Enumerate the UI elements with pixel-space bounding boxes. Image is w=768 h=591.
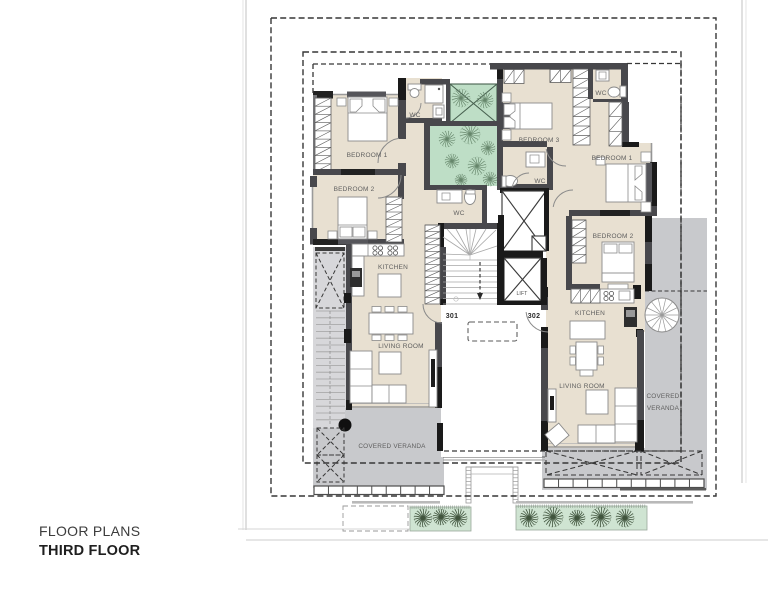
svg-text:BEDROOM 1: BEDROOM 1	[592, 155, 633, 162]
svg-text:BEDROOM 3: BEDROOM 3	[519, 137, 560, 144]
svg-text:WC: WC	[534, 178, 545, 185]
svg-text:WC: WC	[595, 90, 606, 97]
svg-text:LIVING ROOM: LIVING ROOM	[378, 343, 424, 350]
svg-text:LIFT: LIFT	[516, 291, 527, 297]
svg-text:BEDROOM 2: BEDROOM 2	[593, 233, 634, 240]
svg-text:KITCHEN: KITCHEN	[575, 310, 605, 317]
svg-text:COVERED VERANDA: COVERED VERANDA	[358, 443, 426, 450]
svg-text:THIRD FLOOR: THIRD FLOOR	[39, 543, 141, 559]
svg-text:BEDROOM 1: BEDROOM 1	[347, 152, 388, 159]
svg-text:BEDROOM 2: BEDROOM 2	[334, 186, 375, 193]
svg-text:KITCHEN: KITCHEN	[378, 264, 408, 271]
svg-text:302: 302	[528, 313, 541, 320]
svg-text:VERANDA: VERANDA	[647, 405, 680, 412]
svg-text:COVERED: COVERED	[646, 393, 679, 400]
svg-text:FLOOR PLANS: FLOOR PLANS	[39, 523, 140, 539]
svg-text:WC: WC	[453, 210, 464, 217]
svg-text:LIVING ROOM: LIVING ROOM	[559, 383, 605, 390]
svg-text:WC: WC	[409, 112, 420, 119]
svg-text:301: 301	[446, 313, 459, 320]
